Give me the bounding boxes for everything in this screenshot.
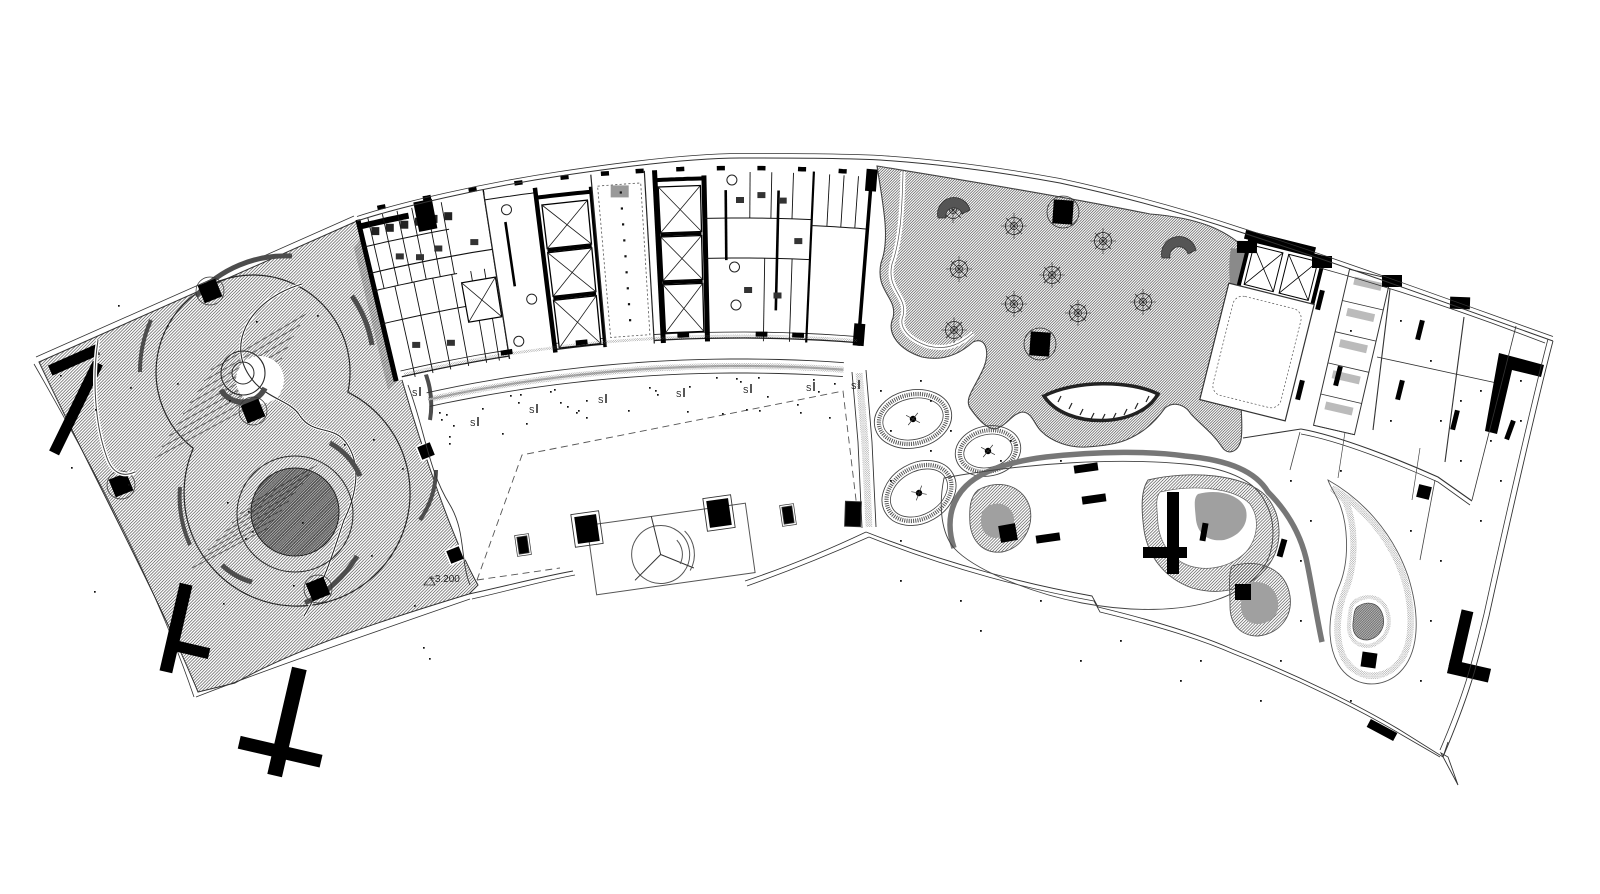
svg-text:S: S (851, 382, 856, 391)
svg-text:S: S (470, 419, 475, 428)
svg-text:S: S (598, 396, 603, 405)
svg-text:S: S (676, 390, 681, 399)
svg-text:S: S (412, 389, 417, 398)
svg-text:S: S (806, 384, 811, 393)
svg-text:S: S (743, 386, 748, 395)
svg-text:S: S (529, 406, 534, 415)
